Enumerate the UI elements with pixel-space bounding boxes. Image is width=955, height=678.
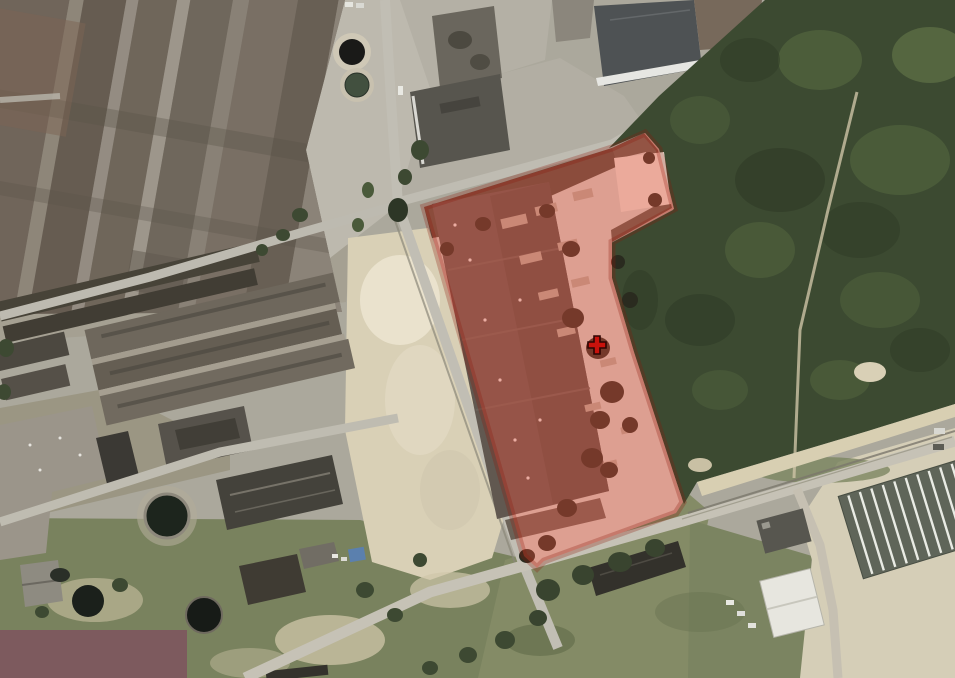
map-viewport[interactable]: [0, 0, 955, 678]
blue-tarp-roof: [348, 547, 366, 563]
aerial-map[interactable]: [0, 0, 955, 678]
storage-tank: [72, 585, 104, 617]
storage-tank: [186, 597, 222, 633]
storage-tank: [339, 39, 365, 65]
storage-tank: [345, 73, 369, 97]
storage-tank: [145, 494, 189, 538]
redaction-box: [0, 630, 187, 678]
